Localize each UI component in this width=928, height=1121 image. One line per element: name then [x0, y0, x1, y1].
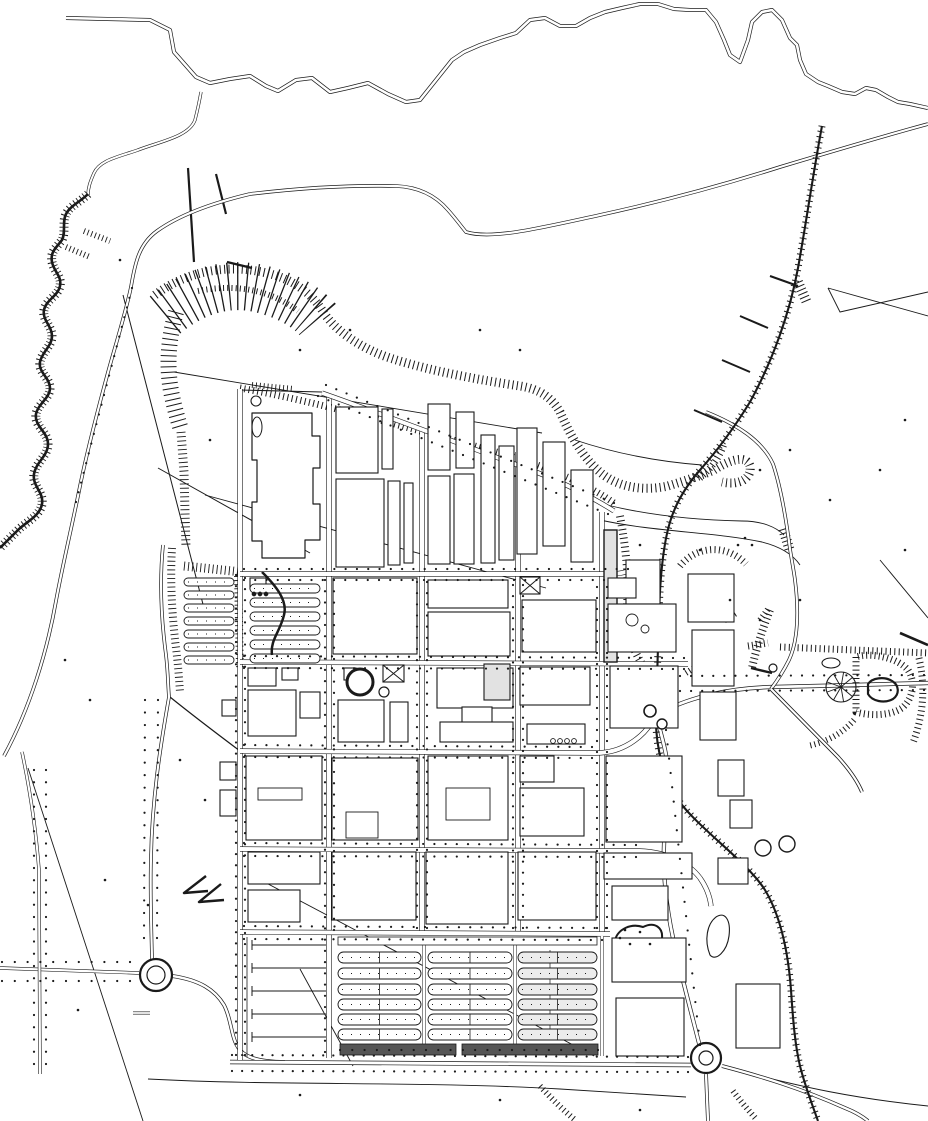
- layer-stream: [88, 92, 201, 195]
- map-canvas: [0, 0, 928, 1121]
- layer-lake-pond: [868, 678, 898, 701]
- layer-canal-banks: [0, 194, 88, 548]
- layer-river: [66, 4, 928, 108]
- site-plan-map: [0, 0, 928, 1121]
- layer-canal: [0, 194, 88, 548]
